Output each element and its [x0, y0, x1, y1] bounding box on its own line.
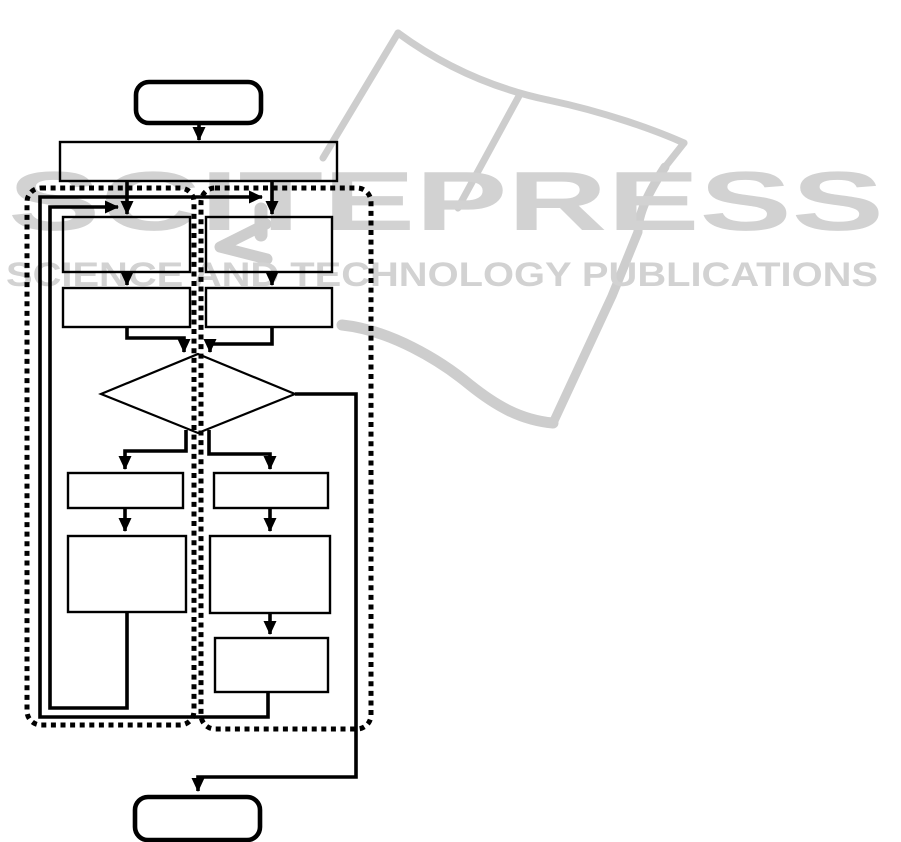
right-step-4	[210, 536, 330, 613]
right-step-5	[215, 638, 328, 692]
edge-right2-to-decision	[210, 327, 272, 352]
figure-page: SCITEPRESS SCIENCE AND TECHNOLOGY PUBLIC…	[0, 0, 901, 842]
left-page-left-edge	[323, 33, 398, 158]
flowchart-canvas: SCITEPRESS SCIENCE AND TECHNOLOGY PUBLIC…	[0, 0, 901, 842]
start-terminator	[136, 82, 261, 123]
edge-left2-to-decision	[127, 327, 184, 352]
edge-decision-to-right3	[209, 430, 270, 469]
edge-decision-to-left3	[125, 430, 186, 469]
right-step-3	[214, 473, 328, 508]
left-page-top-edge	[398, 33, 548, 100]
end-terminator	[135, 797, 260, 840]
left-step-4	[68, 536, 186, 612]
right-page-top-edge	[548, 100, 684, 143]
left-step-3	[68, 473, 183, 508]
watermark-title: SCITEPRESS	[8, 154, 884, 248]
decision-diamond	[101, 354, 295, 433]
page-bottom-edge	[342, 325, 553, 423]
